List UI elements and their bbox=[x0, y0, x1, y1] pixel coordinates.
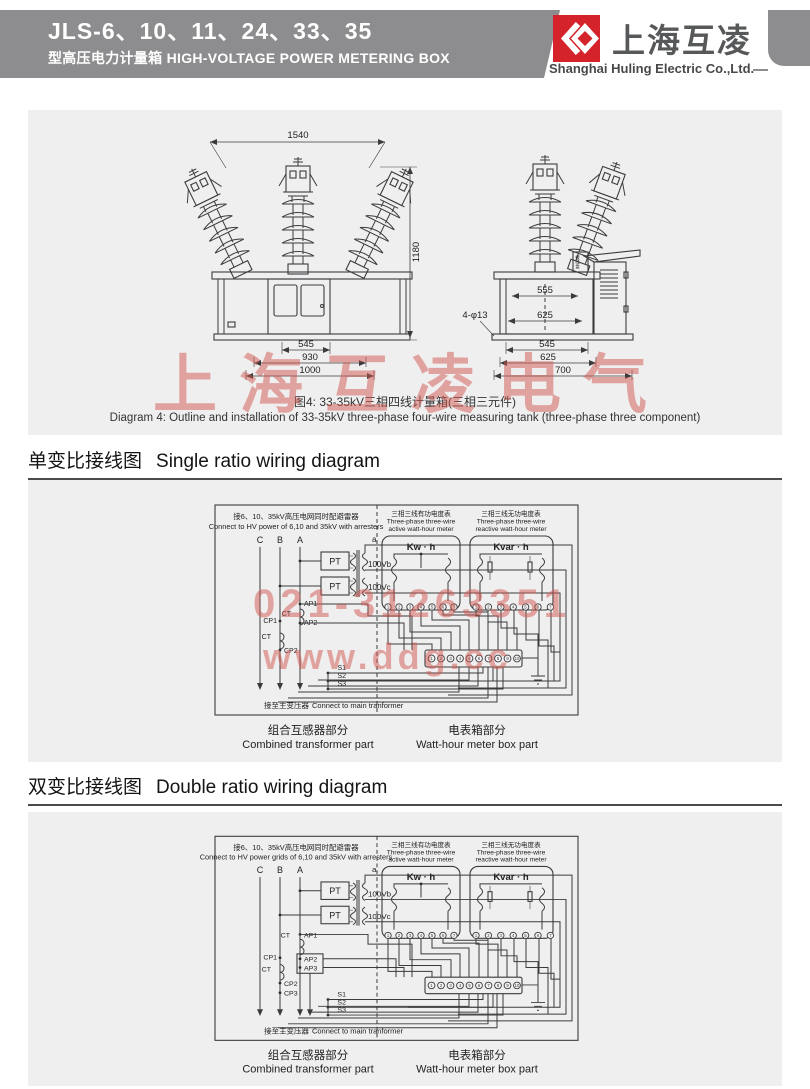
huling-logo-icon bbox=[553, 15, 600, 62]
d1-pt1-label: PT bbox=[329, 557, 341, 567]
header-corner-tab bbox=[768, 10, 810, 66]
d2-active-meter-terminals: 1234567 bbox=[385, 932, 457, 938]
d2-phase-a: A bbox=[297, 865, 303, 875]
d2-hv-header-en: Connect to HV power grids of 6,10 and 35… bbox=[200, 853, 393, 862]
d2-phase-b: B bbox=[277, 865, 283, 875]
d1-out-b: 100Vb bbox=[368, 560, 392, 569]
figure-caption: 图4: 33-35kV三相四线计量箱(三相三元件) Diagram 4: Out… bbox=[28, 393, 782, 424]
double-ratio-diagram-svg: 接6、10、35kV高压电网同时配避雷器 Connect to HV power… bbox=[28, 812, 782, 1086]
d2-reactive-header-en1: Three-phase three-wire bbox=[477, 849, 546, 856]
d2-terminal-strip: 12345678910 bbox=[428, 982, 520, 989]
d2-active-header-en1: Three-phase three-wire bbox=[387, 849, 456, 856]
d1-hv-header-en: Connect to HV power of 6,10 and 35kV wit… bbox=[209, 522, 384, 531]
catalog-page: JLS-6、10、11、24、33、35 型高压电力计量箱 HIGH-VOLTA… bbox=[0, 0, 810, 1089]
d2-part-right-cn: 电表箱部分 bbox=[448, 1048, 505, 1062]
d2-reactive-header-en2: reactive watt-hour meter bbox=[475, 857, 547, 864]
d2-ap1-label: AP1 bbox=[304, 932, 317, 939]
brand-name-en: Shanghai Huling Electric Co.,Ltd. bbox=[549, 61, 754, 76]
section-title-single-ratio: 单变比接线图Single ratio wiring diagram bbox=[28, 446, 782, 480]
d2-s2-label: S2 bbox=[337, 999, 346, 1006]
d1-reactive-header-cn: 三相三线无功电度表 bbox=[481, 509, 541, 518]
d1-phase-a: A bbox=[297, 535, 303, 545]
d1-reactive-header-en2: reactive watt-hour meter bbox=[475, 526, 547, 533]
single-ratio-diagram-svg: 接6、10、35kV高压电网同时配避雷器 Connect to HV power… bbox=[28, 480, 782, 762]
d1-kvarh-label: Kvar · h bbox=[493, 542, 529, 553]
junction-box-label: 接线盒 bbox=[575, 254, 581, 269]
d1-meter-part: 三相三线有功电度表 Three-phase three-wire active … bbox=[382, 509, 554, 667]
section1-title-en: Single ratio wiring diagram bbox=[156, 451, 380, 472]
brand-name-cn: 上海互凌 bbox=[612, 14, 752, 62]
dim-front-b2: 930 bbox=[302, 352, 318, 363]
subtitle-en: HIGH-VOLTAGE POWER METERING BOX bbox=[167, 50, 450, 66]
d2-phase-c: C bbox=[257, 865, 264, 875]
page-subtitle: 型高压电力计量箱 HIGH-VOLTAGE POWER METERING BOX bbox=[48, 48, 450, 68]
d1-cp2-label: CP2 bbox=[284, 648, 298, 655]
dim-side-b1: 545 bbox=[539, 339, 555, 350]
d1-part-left-cn: 组合互感器部分 bbox=[268, 723, 349, 737]
d1-active-header-en1: Three-phase three-wire bbox=[387, 519, 456, 526]
d1-phase-c: C bbox=[257, 535, 264, 545]
side-view-drawing: 接线盒 555 625 4-φ13 545 625 bbox=[462, 155, 640, 380]
d2-out-c: 100Vc bbox=[368, 912, 391, 921]
d2-s1-label: S1 bbox=[337, 992, 346, 999]
d1-cp1-label: CP1 bbox=[263, 618, 277, 625]
d2-out-b: 100Vb bbox=[368, 890, 392, 899]
single-ratio-diagram-panel: 接6、10、35kV高压电网同时配避雷器 Connect to HV power… bbox=[28, 480, 782, 762]
section-title-double-ratio: 双变比接线图Double ratio wiring diagram bbox=[28, 772, 782, 806]
d1-reactive-header-en1: Three-phase three-wire bbox=[477, 519, 546, 526]
d1-part-right-cn: 电表箱部分 bbox=[448, 723, 506, 737]
d2-cp2-label: CP2 bbox=[284, 981, 298, 988]
d2-out-a: a bbox=[372, 865, 377, 874]
d2-ap3-label: AP3 bbox=[304, 965, 317, 972]
d2-pt1-label: PT bbox=[329, 886, 341, 896]
d2-part-right-en: Watt-hour meter box part bbox=[416, 1064, 538, 1076]
d1-s3-label: S3 bbox=[337, 681, 346, 688]
d2-part-left-cn: 组合互感器部分 bbox=[268, 1048, 348, 1062]
d1-part-left-en: Combined transformer part bbox=[242, 739, 373, 751]
d1-ct2-label: CT bbox=[262, 634, 272, 641]
section2-title-cn: 双变比接线图 bbox=[28, 777, 142, 798]
dim-front-top: 1540 bbox=[287, 130, 308, 141]
d1-pt2-label: PT bbox=[329, 582, 341, 592]
d1-kwh-label: Kw · h bbox=[407, 542, 436, 553]
svg-text:10: 10 bbox=[515, 656, 520, 661]
figure-caption-cn: 图4: 33-35kV三相四线计量箱(三相三元件) bbox=[28, 393, 782, 410]
dim-side-b2: 625 bbox=[540, 352, 556, 363]
d2-active-header-cn: 三相三线有功电度表 bbox=[391, 840, 451, 849]
d1-s2-label: S2 bbox=[337, 673, 346, 680]
d2-s3-label: S3 bbox=[337, 1007, 346, 1014]
d1-out-c: 100Vc bbox=[368, 583, 391, 592]
d2-reactive-header-cn: 三相三线无功电度表 bbox=[481, 840, 541, 849]
d1-s1-label: S1 bbox=[337, 665, 346, 672]
double-ratio-diagram-panel: 接6、10、35kV高压电网同时配避雷器 Connect to HV power… bbox=[28, 812, 782, 1086]
d1-active-header-cn: 三相三线有功电度表 bbox=[391, 509, 451, 518]
d1-out-a: a bbox=[372, 535, 377, 544]
d1-phase-b: B bbox=[277, 535, 283, 545]
d2-meter-part: 三相三线有功电度表 Three-phase three-wire active … bbox=[382, 840, 554, 994]
d2-reactive-meter-terminals: 1234567 bbox=[473, 932, 554, 938]
dim-front-b1: 545 bbox=[298, 339, 314, 350]
outline-drawing-svg: 1540 1180 545 930 1000 bbox=[28, 110, 782, 390]
dim-side-in1: 555 bbox=[537, 285, 553, 296]
dim-front-right: 1180 bbox=[411, 242, 422, 262]
brand-rule bbox=[753, 69, 768, 71]
d2-ct2-label: CT bbox=[262, 966, 272, 973]
d2-hv-header-cn: 接6、10、35kV高压电网同时配避雷器 bbox=[233, 843, 359, 852]
d1-ct1-label: CT bbox=[282, 611, 292, 618]
d1-part-right-en: Watt-hour meter box part bbox=[416, 739, 538, 751]
d2-part-left-en: Combined transformer part bbox=[242, 1064, 373, 1076]
dim-side-b3: 700 bbox=[555, 365, 571, 376]
d1-hv-header-cn: 接6、10、35kV高压电网同时配避雷器 bbox=[233, 512, 359, 521]
d1-active-header-en2: active watt-hour meter bbox=[388, 526, 454, 533]
d2-cp1-label: CP1 bbox=[263, 955, 277, 962]
front-view-drawing: 1540 1180 545 930 1000 bbox=[175, 130, 424, 380]
d2-pt2-label: PT bbox=[329, 911, 341, 921]
dim-side-in2: 625 bbox=[537, 310, 553, 321]
subtitle-cn: 型高压电力计量箱 bbox=[48, 50, 162, 66]
d1-reactive-meter-terminals: 1234567 bbox=[473, 604, 554, 610]
d2-ct1-label: CT bbox=[281, 932, 291, 939]
svg-text:10: 10 bbox=[515, 983, 520, 988]
d1-terminal-strip: 12345678910 bbox=[428, 655, 520, 662]
d1-active-meter-terminals: 1234567 bbox=[385, 604, 457, 610]
d2-ap2-label: AP2 bbox=[304, 957, 317, 964]
d2-cp3-label: CP3 bbox=[284, 991, 298, 998]
page-title: JLS-6、10、11、24、33、35 bbox=[48, 12, 372, 46]
section2-title-en: Double ratio wiring diagram bbox=[156, 777, 387, 798]
d2-active-header-en2: active watt-hour meter bbox=[388, 857, 454, 864]
section1-title-cn: 单变比接线图 bbox=[28, 451, 142, 472]
d2-kvarh-label: Kvar · h bbox=[493, 872, 529, 882]
dim-front-b3: 1000 bbox=[299, 365, 320, 376]
outline-drawing-panel: 1540 1180 545 930 1000 bbox=[28, 110, 782, 435]
figure-caption-en: Diagram 4: Outline and installation of 3… bbox=[28, 412, 782, 424]
d2-kwh-label: Kw · h bbox=[407, 872, 436, 882]
mounting-holes-label: 4-φ13 bbox=[462, 310, 487, 321]
